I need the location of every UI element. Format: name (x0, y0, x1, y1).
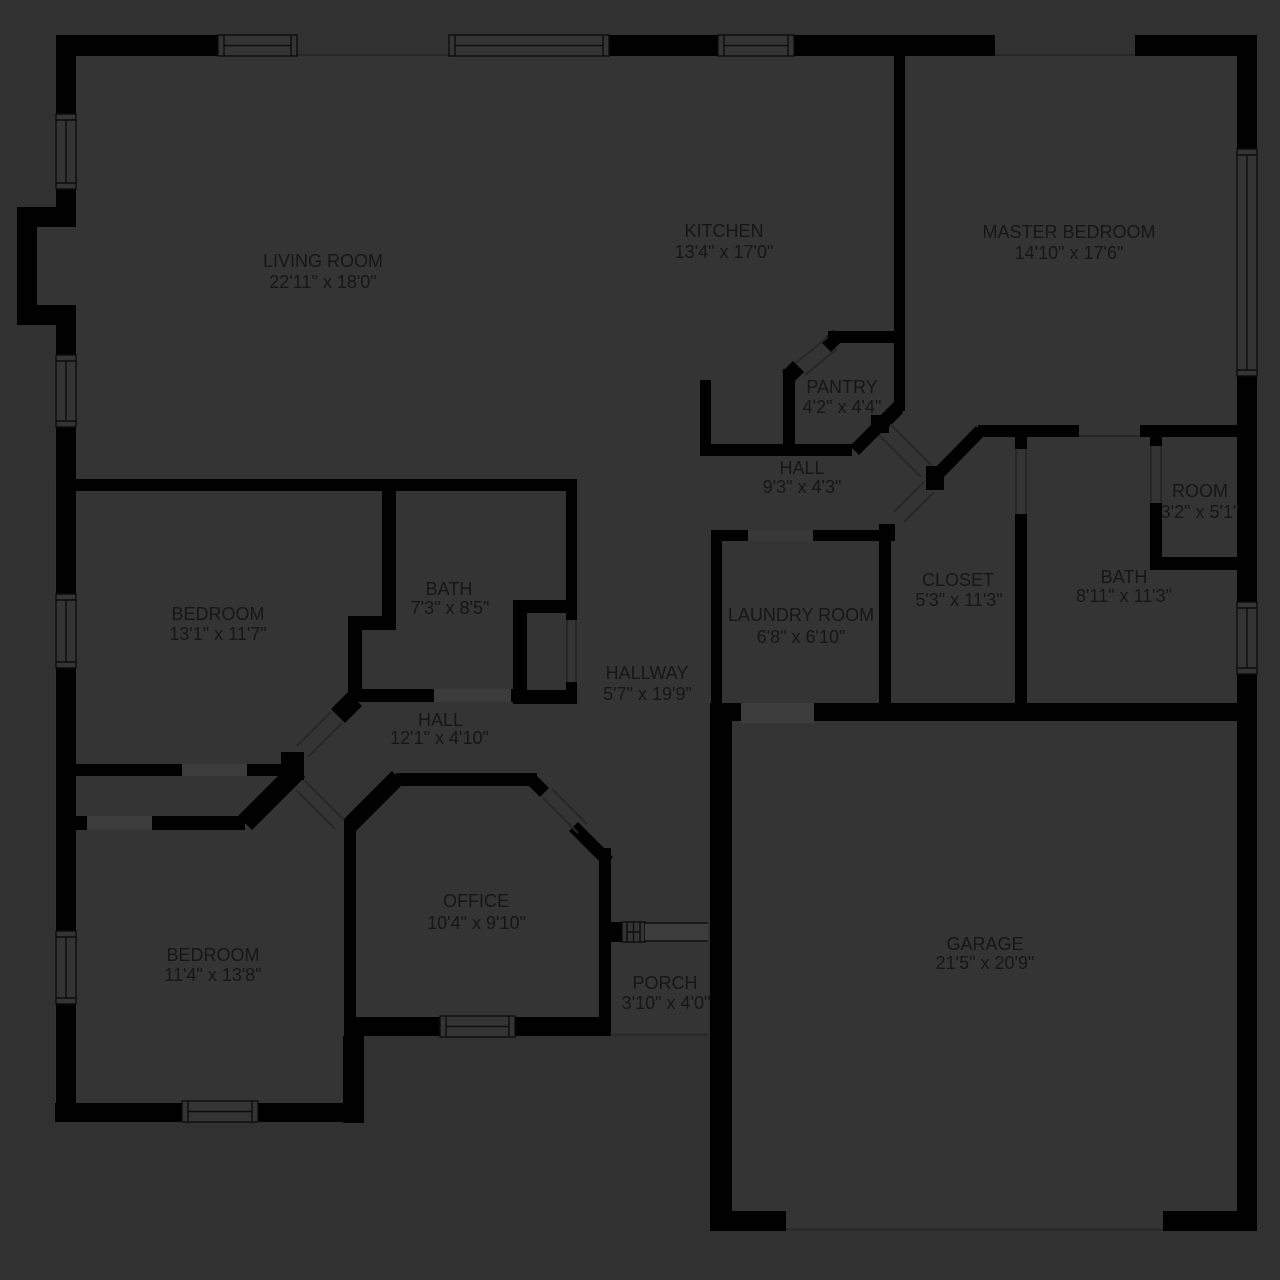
svg-text:BEDROOM: BEDROOM (171, 604, 264, 624)
svg-text:14'10" x 17'6": 14'10" x 17'6" (1015, 243, 1124, 263)
svg-text:PANTRY: PANTRY (806, 377, 877, 397)
svg-text:HALLWAY: HALLWAY (606, 663, 689, 683)
svg-text:BATH: BATH (1101, 567, 1148, 587)
svg-text:HALL: HALL (418, 710, 463, 730)
svg-text:LIVING ROOM: LIVING ROOM (263, 251, 383, 271)
svg-text:7'3" x 8'5": 7'3" x 8'5" (411, 598, 490, 618)
svg-text:MASTER BEDROOM: MASTER BEDROOM (982, 222, 1155, 242)
svg-text:KITCHEN: KITCHEN (684, 221, 763, 241)
svg-text:22'11" x 18'0": 22'11" x 18'0" (269, 272, 376, 292)
svg-text:5'7" x 19'9": 5'7" x 19'9" (603, 684, 692, 704)
svg-text:BATH: BATH (426, 579, 473, 599)
svg-text:9'3" x 4'3": 9'3" x 4'3" (763, 477, 842, 497)
svg-text:4'2" x 4'4": 4'2" x 4'4" (803, 397, 882, 417)
svg-text:8'11" x 11'3": 8'11" x 11'3" (1076, 586, 1172, 606)
svg-text:HALL: HALL (779, 458, 824, 478)
svg-text:BEDROOM: BEDROOM (166, 945, 259, 965)
svg-text:13'1" x 11'7": 13'1" x 11'7" (169, 624, 266, 644)
svg-text:CLOSET: CLOSET (922, 570, 994, 590)
svg-text:ROOM: ROOM (1172, 481, 1228, 501)
svg-text:5'3" x 11'3": 5'3" x 11'3" (915, 590, 1002, 610)
svg-text:3'2" x 5'1": 3'2" x 5'1" (1161, 502, 1240, 522)
svg-text:OFFICE: OFFICE (443, 891, 509, 911)
svg-text:10'4" x 9'10": 10'4" x 9'10" (427, 913, 526, 933)
svg-text:GARAGE: GARAGE (946, 934, 1023, 954)
svg-text:12'1" x 4'10": 12'1" x 4'10" (390, 728, 489, 748)
svg-text:3'10" x 4'0": 3'10" x 4'0" (622, 993, 711, 1013)
svg-text:21'5" x 20'9": 21'5" x 20'9" (936, 953, 1035, 973)
svg-text:11'4" x 13'8": 11'4" x 13'8" (164, 965, 261, 985)
svg-text:PORCH: PORCH (632, 973, 697, 993)
svg-text:13'4" x 17'0": 13'4" x 17'0" (675, 242, 774, 262)
svg-text:6'8" x 6'10": 6'8" x 6'10" (757, 627, 846, 647)
svg-text:LAUNDRY ROOM: LAUNDRY ROOM (728, 605, 874, 625)
